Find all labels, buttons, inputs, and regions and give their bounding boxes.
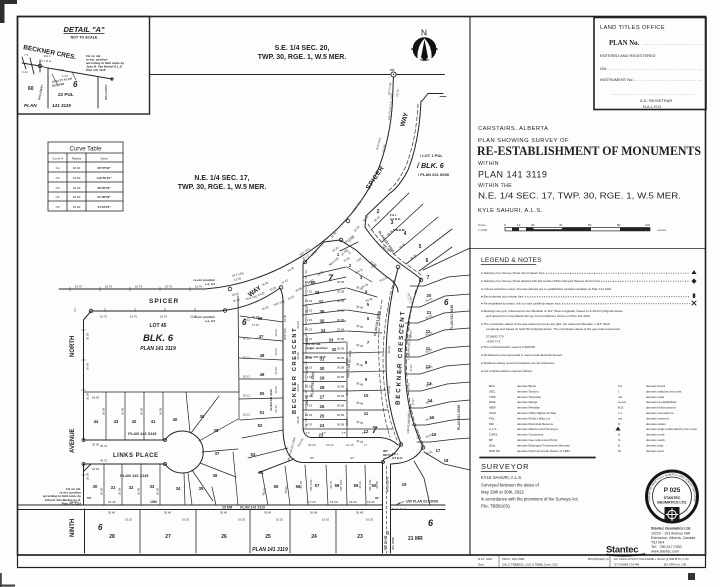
- svg-text:25: 25: [320, 414, 325, 419]
- svg-text:142°50'15": 142°50'15": [96, 176, 112, 180]
- svg-text:35.05: 35.05: [345, 358, 349, 366]
- svg-text:BLK. 6: BLK. 6: [143, 333, 174, 344]
- svg-text:80: 80: [617, 223, 621, 227]
- svg-text:47: 47: [259, 334, 264, 339]
- svg-text:Surveyed between the dates of: Surveyed between the dates of: [481, 483, 540, 488]
- svg-text:ON:: ON:: [600, 66, 607, 71]
- svg-text:30.48: 30.48: [310, 511, 317, 515]
- svg-text:30.48: 30.48: [220, 511, 227, 515]
- svg-text:6: 6: [98, 523, 103, 532]
- svg-text:14.33: 14.33: [305, 413, 312, 417]
- svg-text:23: 23: [357, 534, 363, 540]
- svg-text:PLAN 141 3119: PLAN 141 3119: [269, 389, 273, 411]
- svg-text:34.04: 34.04: [296, 384, 300, 392]
- svg-text:23.93: 23.93: [70, 500, 78, 504]
- svg-text:NINTH: NINTH: [70, 519, 76, 537]
- svg-text:37: 37: [319, 300, 324, 305]
- svg-text:17.07: 17.07: [252, 323, 259, 327]
- svg-text:NAD 83: NAD 83: [489, 449, 500, 453]
- svg-text:18: 18: [444, 458, 449, 463]
- svg-text:E.: E.: [618, 443, 621, 447]
- svg-text:14.33: 14.33: [305, 328, 312, 332]
- svg-text:denotes Section: denotes Section: [517, 389, 539, 393]
- svg-text:C3: C3: [56, 186, 60, 190]
- svg-text:● List of abbreviations used: ● List of abbreviations used as follows:: [481, 369, 533, 373]
- svg-text:NOT TO SCALE: NOT TO SCALE: [71, 36, 98, 40]
- svg-text:denotes Municipal Reserve: denotes Municipal Reserve: [517, 422, 554, 426]
- svg-text:16.02: 16.02: [322, 518, 329, 522]
- svg-text:35.05: 35.05: [345, 388, 349, 396]
- svg-text:36: 36: [320, 309, 325, 314]
- svg-text:C2: C2: [56, 176, 60, 180]
- svg-text:30: 30: [93, 484, 98, 489]
- svg-text:denotes Public Utility Lot: denotes Public Utility Lot: [517, 416, 550, 420]
- svg-text:Curve #: Curve #: [52, 157, 63, 161]
- svg-text:30.18: 30.18: [387, 386, 391, 394]
- svg-text:10220 - 103 Avenue NW: 10220 - 103 Avenue NW: [651, 532, 691, 536]
- svg-text:36.03: 36.03: [308, 443, 316, 447]
- svg-text:40: 40: [173, 417, 178, 422]
- svg-text:15.00: 15.00: [73, 205, 81, 209]
- svg-text:S.: S.: [618, 438, 621, 442]
- svg-text:Plan 141 3119: Plan 141 3119: [86, 68, 106, 72]
- svg-text:Curve Table: Curve Table: [70, 147, 103, 153]
- svg-text:5: 5: [419, 244, 422, 250]
- svg-text:30.48: 30.48: [356, 511, 363, 515]
- svg-text:Fd.: Fd.: [618, 384, 623, 388]
- svg-text:SURVEYOR: SURVEYOR: [481, 462, 529, 471]
- svg-text:36.58: 36.58: [337, 280, 344, 284]
- svg-text:GT-CMMB 176-RB: GT-CMMB 176-RB: [614, 563, 639, 567]
- svg-text:7.5: 7.5: [24, 53, 29, 57]
- svg-text:36.58: 36.58: [156, 488, 160, 495]
- svg-text:60: 60: [588, 223, 592, 227]
- svg-text:UW PLAN: UW PLAN: [383, 536, 387, 550]
- svg-text:85°: 85°: [310, 456, 315, 460]
- svg-text:14.33: 14.33: [305, 423, 312, 427]
- svg-text:INSTRUMENT No:: INSTRUMENT No:: [600, 77, 633, 82]
- svg-text:21°36'00": 21°36'00": [97, 195, 111, 199]
- svg-text:17°: 17°: [306, 431, 310, 435]
- svg-text:38: 38: [315, 290, 320, 295]
- svg-text:BECKNER CRESCENT: BECKNER CRESCENT: [292, 327, 298, 414]
- svg-text:B.G.: B.G.: [618, 406, 624, 410]
- svg-text:TWP. 30, RGE. 1, W.5 MER.: TWP. 30, RGE. 1, W.5 MER.: [178, 184, 267, 191]
- svg-text:30.48: 30.48: [296, 416, 300, 424]
- svg-text:50: 50: [260, 391, 265, 396]
- svg-text:SEC.: SEC.: [489, 389, 496, 393]
- svg-text:14.33: 14.33: [274, 348, 278, 356]
- svg-text:36.58: 36.58: [337, 328, 344, 332]
- svg-text:17.07: 17.07: [407, 412, 411, 420]
- svg-text:6: 6: [73, 80, 78, 89]
- svg-text:2: 2: [377, 209, 380, 215]
- svg-text:36.58: 36.58: [337, 394, 344, 398]
- svg-text:20.12: 20.12: [243, 394, 250, 398]
- svg-text:denotes Block: denotes Block: [517, 384, 536, 388]
- svg-text:29: 29: [320, 376, 325, 381]
- svg-text:BLK.: BLK.: [489, 384, 496, 388]
- svg-text:17°: 17°: [362, 431, 366, 435]
- svg-text:PLAN 141 3119: PLAN 141 3119: [240, 506, 265, 510]
- svg-text:Stantec: Stantec: [606, 545, 638, 556]
- svg-text:in accordance with the provisi: in accordance with the provisions of the…: [481, 497, 579, 502]
- svg-text:14.33: 14.33: [274, 386, 278, 394]
- svg-text:KYLE SAHURI, A.L.S.: KYLE SAHURI, A.L.S.: [481, 475, 522, 480]
- svg-text:38: 38: [214, 428, 219, 433]
- svg-text:Stantec Geomatics Ltd.: Stantec Geomatics Ltd.: [651, 527, 691, 531]
- svg-text:PLAN: PLAN: [24, 103, 37, 108]
- svg-text:36.58: 36.58: [121, 408, 125, 415]
- svg-text:denotes radius: denotes radius: [646, 422, 666, 426]
- svg-text:36.58: 36.58: [159, 408, 163, 415]
- svg-text:21.45: 21.45: [346, 443, 354, 447]
- svg-text:..............................: ........................................…: [611, 91, 695, 96]
- svg-text:BS SRM kb. 100: BS SRM kb. 100: [664, 563, 687, 567]
- svg-text:N.E. 1/4 SEC. 17, TWP. 30, RGE: N.E. 1/4 SEC. 17, TWP. 30, RGE. 1, W.5 M…: [478, 191, 681, 201]
- svg-text:Scale: Scale: [478, 223, 486, 227]
- svg-text:24: 24: [311, 534, 317, 540]
- svg-text:40°: 40°: [350, 456, 355, 460]
- svg-text:N.: N.: [618, 433, 621, 437]
- svg-text:42: 42: [132, 419, 137, 424]
- svg-text:35.70: 35.70: [299, 481, 303, 489]
- svg-text:ENTERED AND REGISTERED: ENTERED AND REGISTERED: [600, 53, 656, 58]
- svg-text:16.76: 16.76: [195, 285, 202, 289]
- svg-text:20.00: 20.00: [92, 443, 99, 447]
- svg-text:c.a. 0.2: c.a. 0.2: [205, 282, 215, 286]
- svg-text:18.00: 18.00: [73, 195, 81, 199]
- svg-text:● Unless otherwise noted, all: ● Unless otherwise noted, all posts plan…: [481, 287, 612, 291]
- svg-text:denotes Township: denotes Township: [517, 395, 541, 399]
- svg-text:18.00: 18.00: [73, 186, 81, 190]
- svg-text:11: 11: [364, 411, 369, 416]
- svg-text:44: 44: [94, 419, 99, 424]
- svg-text:28: 28: [109, 534, 115, 540]
- svg-text:14.33: 14.33: [274, 405, 278, 413]
- svg-text:Delta: Delta: [100, 157, 107, 161]
- svg-text:15.30: 15.30: [330, 500, 338, 504]
- svg-text:22 PUL: 22 PUL: [58, 92, 74, 97]
- svg-text:-4756.77.9: -4756.77.9: [486, 340, 501, 344]
- svg-text:N: N: [421, 28, 427, 38]
- svg-text:MER.: MER.: [489, 406, 497, 410]
- svg-text:14°10'25": 14°10'25": [97, 205, 111, 209]
- svg-text:16.02: 16.02: [276, 518, 283, 522]
- svg-text:N0°12'E: N0°12'E: [309, 480, 313, 491]
- svg-text:10. 1003 LAYOUT CALCHMB + Stru: 10. 1003 LAYOUT CALCHMB + Struct gr 508 …: [614, 557, 689, 561]
- svg-text:36.15: 36.15: [329, 481, 333, 489]
- svg-text:denotes Meridian: denotes Meridian: [517, 406, 540, 410]
- svg-text:30.48: 30.48: [296, 352, 300, 360]
- svg-text:45.72: 45.72: [100, 444, 107, 448]
- svg-text:20.12: 20.12: [243, 413, 250, 417]
- svg-text:60: 60: [28, 86, 34, 92]
- svg-text:55: 55: [274, 484, 279, 489]
- svg-text:36.58: 36.58: [86, 333, 90, 340]
- svg-text:C1: C1: [56, 166, 60, 170]
- svg-text:PLAN No.: PLAN No.: [609, 40, 640, 47]
- svg-text:36.58: 36.58: [337, 423, 344, 427]
- svg-text:33: 33: [150, 484, 155, 489]
- svg-text:May 29th to 30th, 2022: May 29th to 30th, 2022: [481, 490, 525, 495]
- svg-text:17.07: 17.07: [409, 364, 413, 372]
- svg-text:14.33: 14.33: [305, 290, 312, 294]
- svg-text:17.07: 17.07: [407, 292, 411, 300]
- svg-text:5716893.779: 5716893.779: [486, 335, 504, 339]
- svg-text:W.: W.: [618, 449, 622, 453]
- svg-text:36.58: 36.58: [337, 413, 344, 417]
- svg-text:6: 6: [426, 258, 429, 264]
- svg-text:16.76: 16.76: [75, 285, 82, 289]
- svg-text:CALC-TBBB181_C02 & TBBB_Cree_C: CALC-TBBB181_C02 & TBBB_Cree_C02: [502, 563, 558, 567]
- svg-text:19: 19: [402, 482, 407, 487]
- svg-text:26: 26: [320, 404, 325, 409]
- svg-text:14.33: 14.33: [305, 394, 312, 398]
- svg-text:32: 32: [129, 485, 134, 490]
- svg-text:NORTH: NORTH: [70, 336, 76, 357]
- svg-text:36.58: 36.58: [337, 375, 344, 379]
- svg-text:res.: res.: [618, 416, 623, 420]
- svg-text:49: 49: [260, 372, 265, 377]
- svg-text:denotes Geo-referenced Point: denotes Geo-referenced Point: [517, 438, 557, 442]
- svg-text:16.76: 16.76: [165, 285, 172, 289]
- svg-text:denotes angle subtended by the: denotes angle subtended by the curve: [646, 427, 697, 431]
- svg-text:DETAIL "A": DETAIL "A": [63, 25, 104, 34]
- svg-text:and derived from the Alberta S: and derived from the Alberta Survey Cont…: [486, 314, 591, 318]
- svg-text:BOOK(link0), kr: BOOK(link0), kr: [588, 557, 609, 561]
- svg-text:● Statutory Iron Survey Posts: ● Statutory Iron Survey Posts found show…: [481, 271, 602, 275]
- svg-text:LINKS PLACE: LINKS PLACE: [113, 453, 159, 459]
- svg-text:90°: 90°: [375, 496, 380, 500]
- svg-text:metres: metres: [657, 228, 667, 232]
- svg-text:36.58: 36.58: [337, 366, 344, 370]
- svg-text:MP: MP: [390, 68, 395, 72]
- svg-text:36.58: 36.58: [337, 309, 344, 313]
- svg-text:● The coordinate values of th: ● The coordinate values of the geo-refer…: [481, 322, 610, 326]
- svg-text:T.W.B.M.: T.W.B.M.: [393, 228, 405, 232]
- svg-text:32.50: 32.50: [284, 486, 289, 494]
- svg-text:0.3 B.G.: 0.3 B.G.: [390, 217, 401, 221]
- svg-text:denotes North American Datum o: denotes North American Datum of 1983: [517, 449, 570, 453]
- svg-text:File: TBBB1031: File: TBBB1031: [481, 504, 511, 509]
- svg-text:PUL: PUL: [398, 327, 402, 333]
- svg-text:36.58: 36.58: [337, 404, 344, 408]
- svg-text:N54°13'E: N54°13'E: [283, 328, 287, 340]
- svg-text:SPICER: SPICER: [149, 298, 179, 305]
- svg-text:16.02: 16.02: [366, 518, 373, 522]
- svg-text:D.FT. JAM: D.FT. JAM: [478, 557, 493, 561]
- svg-text:36.58: 36.58: [337, 356, 344, 360]
- svg-text:S.E. 1/4 SEC. 20,: S.E. 1/4 SEC. 20,: [275, 45, 330, 52]
- svg-text:34: 34: [321, 328, 326, 333]
- svg-text:R.: R.: [618, 422, 621, 426]
- svg-text:18.00: 18.00: [73, 166, 81, 170]
- svg-text:36.33: 36.33: [358, 481, 362, 489]
- svg-text:PLAN 141 3119: PLAN 141 3119: [128, 431, 157, 436]
- svg-text:C5: C5: [56, 205, 60, 209]
- svg-text:10: 10: [364, 393, 369, 398]
- svg-text:CARSTAIRS, ALBERTA: CARSTAIRS, ALBERTA: [478, 126, 549, 132]
- svg-text:17.07: 17.07: [407, 352, 411, 360]
- svg-text:denotes Estimated Transverse M: denotes Estimated Transverse Mercator: [517, 443, 570, 447]
- svg-text:PLAN 141 3119: PLAN 141 3119: [120, 473, 149, 478]
- svg-text:LOT 45: LOT 45: [150, 323, 167, 329]
- svg-text:36°36'40": 36°36'40": [97, 186, 111, 190]
- svg-text:RE-ESTABLISHMENT OF MONUMENTS: RE-ESTABLISHMENT OF MONUMENTS: [477, 143, 701, 158]
- svg-text:22: 22: [386, 531, 390, 535]
- svg-text:/ LOT 1 PUL: / LOT 1 PUL: [420, 153, 443, 158]
- svg-text:denotes north: denotes north: [646, 433, 665, 437]
- svg-text:16.02: 16.02: [238, 518, 245, 522]
- svg-text:/ BLK. 6: / BLK. 6: [416, 161, 445, 170]
- svg-text:denotes Concurrent: denotes Concurrent: [517, 433, 544, 437]
- svg-text:Fd. I.: Fd. I.: [44, 54, 51, 58]
- svg-text:c.a. 0.2: c.a. 0.2: [205, 319, 215, 323]
- svg-text:34.04: 34.04: [296, 321, 300, 329]
- svg-text:14.33: 14.33: [305, 309, 312, 313]
- svg-text:36.58: 36.58: [337, 347, 344, 351]
- svg-text:31: 31: [111, 485, 116, 490]
- svg-text:29 MR: 29 MR: [222, 506, 233, 510]
- svg-text:denotes found: denotes found: [646, 384, 665, 388]
- svg-text:14.33: 14.33: [274, 367, 278, 375]
- svg-text:denotes Alberta Land Surveyor: denotes Alberta Land Surveyor: [517, 427, 558, 431]
- svg-text:Edmonton, Alberta, Canada: Edmonton, Alberta, Canada: [651, 536, 695, 540]
- svg-text:43: 43: [114, 419, 119, 424]
- svg-text:20.12: 20.12: [243, 375, 250, 379]
- svg-text:14.33: 14.33: [305, 385, 312, 389]
- svg-text:PLAN 021 4639: PLAN 021 4639: [450, 305, 454, 330]
- svg-text:16.76: 16.76: [130, 315, 137, 319]
- svg-text:denotes below ground: denotes below ground: [646, 406, 676, 410]
- svg-text:CSRS.: CSRS.: [489, 433, 498, 437]
- svg-text:16.76: 16.76: [135, 285, 142, 289]
- svg-text:denotes south: denotes south: [646, 438, 665, 442]
- svg-text:15.26: 15.26: [349, 500, 357, 504]
- svg-text:LAND TITLES OFFICE: LAND TITLES OFFICE: [600, 25, 665, 31]
- svg-text:1:1000: 1:1000: [478, 228, 488, 232]
- svg-text:18M: 18M: [150, 500, 157, 504]
- svg-text:36.55: 36.55: [375, 481, 379, 489]
- svg-text:16.76: 16.76: [160, 315, 167, 319]
- svg-text:24: 24: [320, 423, 325, 428]
- svg-text:17: 17: [436, 448, 441, 453]
- svg-text:21.45: 21.45: [108, 500, 116, 504]
- svg-text:36.58: 36.58: [337, 299, 344, 303]
- svg-text:36.58: 36.58: [137, 488, 141, 495]
- svg-text:AVENUE: AVENUE: [70, 428, 76, 453]
- svg-text:7.5: 7.5: [60, 68, 65, 72]
- svg-text:N0°12'E: N0°12'E: [368, 480, 372, 491]
- svg-text:denotes Range: denotes Range: [517, 400, 538, 404]
- svg-text:UKW: UKW: [489, 411, 496, 415]
- svg-text:Radius: Radius: [72, 157, 82, 161]
- svg-text:PLAN 141 3119: PLAN 141 3119: [478, 170, 547, 180]
- svg-text:26: 26: [221, 534, 227, 540]
- svg-text:100: 100: [645, 223, 650, 227]
- svg-text:16.76: 16.76: [190, 315, 197, 319]
- svg-text:16.30: 16.30: [283, 315, 287, 322]
- svg-text:..............................: ....................................: [642, 41, 702, 46]
- svg-text:36.58: 36.58: [86, 363, 90, 370]
- svg-text:● Distances along curved boun: ● Distances along curved boundaries are …: [481, 361, 555, 365]
- svg-text:48: 48: [260, 353, 265, 358]
- svg-text:RGE.: RGE.: [489, 400, 497, 404]
- svg-text:16.76: 16.76: [105, 285, 112, 289]
- svg-text:..............................: ........................................…: [608, 66, 702, 71]
- svg-text:17.07: 17.07: [411, 398, 416, 406]
- svg-text:14.33: 14.33: [305, 337, 312, 341]
- svg-text:33: 33: [329, 338, 334, 343]
- svg-text:36.58: 36.58: [102, 408, 106, 415]
- svg-text:30.18: 30.18: [387, 346, 391, 354]
- svg-text:re-est.: re-est.: [618, 400, 627, 404]
- svg-text:36.58: 36.58: [100, 488, 104, 495]
- svg-text:Dwn.: Dwn.: [478, 563, 485, 567]
- svg-text:18.29: 18.29: [92, 396, 99, 400]
- svg-text:I.: I.: [618, 389, 620, 393]
- svg-text:denotes east: denotes east: [646, 443, 663, 447]
- svg-text:Tel: 780.917.7000: Tel: 780.917.7000: [651, 545, 682, 549]
- svg-text:51: 51: [260, 410, 265, 415]
- svg-text:36.58: 36.58: [337, 290, 344, 294]
- svg-text:17°: 17°: [322, 431, 326, 435]
- svg-text:WALKWAY: WALKWAY: [104, 85, 108, 100]
- svg-text:STANTEC: STANTEC: [664, 496, 681, 500]
- svg-text:14.33: 14.33: [305, 404, 312, 408]
- svg-text:20.12: 20.12: [243, 356, 250, 360]
- svg-text:N.A.L.R.D.: N.A.L.R.D.: [643, 104, 662, 109]
- svg-text:LEGEND & NOTES: LEGEND & NOTES: [481, 257, 542, 264]
- svg-text:PLAN 021 0068: PLAN 021 0068: [457, 405, 461, 430]
- svg-text:27: 27: [320, 395, 325, 400]
- svg-text:14.33: 14.33: [305, 356, 312, 360]
- svg-text:denotes counterbore: denotes counterbore: [646, 411, 674, 415]
- svg-text:14.33: 14.33: [305, 299, 312, 303]
- svg-text:PROJ. 160-7080: PROJ. 160-7080: [502, 557, 525, 561]
- svg-text:T5J 0K4: T5J 0K4: [651, 541, 664, 545]
- svg-text:UW PLAN 021 0068: UW PLAN 021 0068: [406, 500, 438, 504]
- svg-text:WALKWAY: WALKWAY: [386, 477, 390, 492]
- svg-text:c.s.: c.s.: [618, 411, 623, 415]
- svg-text:30.18: 30.18: [387, 306, 391, 314]
- svg-text:35.05: 35.05: [345, 418, 349, 426]
- svg-text:denotes mark: denotes mark: [646, 395, 665, 399]
- svg-text:36.58: 36.58: [337, 337, 344, 341]
- svg-text:mk.: mk.: [618, 395, 623, 399]
- svg-text:TWP.: TWP.: [489, 395, 496, 399]
- svg-text:41: 41: [151, 419, 156, 424]
- svg-text:PUL: PUL: [489, 416, 495, 420]
- svg-text:35: 35: [199, 486, 204, 491]
- svg-text:36°07'30": 36°07'30": [97, 166, 111, 170]
- svg-text:10: 10: [517, 223, 521, 227]
- svg-text:(Est): (Est): [489, 443, 495, 447]
- svg-text:21 MR: 21 MR: [408, 536, 423, 542]
- svg-text:021 0068: 021 0068: [391, 537, 395, 550]
- svg-text:25: 25: [265, 534, 271, 540]
- svg-text:16.02: 16.02: [182, 518, 189, 522]
- svg-text:36.58: 36.58: [86, 473, 90, 480]
- svg-text:● Statutory Iron Survey Posts: ● Statutory Iron Survey Posts planted wi…: [481, 279, 624, 283]
- svg-text:36.58: 36.58: [118, 488, 122, 495]
- svg-text:14.33: 14.33: [274, 329, 278, 337]
- svg-text:6: 6: [444, 298, 449, 307]
- svg-text:denotes restored: denotes restored: [646, 416, 669, 420]
- svg-text:30.48: 30.48: [264, 511, 271, 515]
- svg-text:MP: MP: [87, 496, 92, 500]
